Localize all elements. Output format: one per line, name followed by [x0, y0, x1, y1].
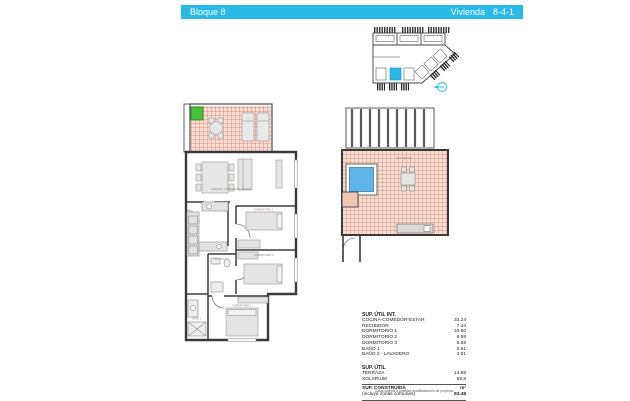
living-label: COCINA, COMEDOR, ESTAR [211, 187, 252, 191]
disclaimer-note: Datos sujetos a posibles modificaciones … [352, 389, 476, 393]
dwelling-label: Vivienda8-4-1 [451, 5, 514, 19]
terrace-green-unit [191, 107, 203, 120]
dwelling-number: 8-4-1 [493, 7, 514, 17]
bath1-label: BAÑO 1 [193, 318, 202, 321]
table-row: SOLARIUM59.8 [362, 377, 466, 383]
title-bar: Bloque 8 Vivienda8-4-1 [181, 5, 523, 19]
solarium-label: SOLARIUM [396, 156, 412, 160]
floor-plan-sheet: Bloque 8 Vivienda8-4-1 [0, 0, 630, 401]
stair-bulkhead [342, 192, 358, 207]
highlighted-unit [390, 68, 401, 80]
compass-icon [434, 83, 447, 92]
bath2-fixtures [211, 258, 230, 292]
building-outline [373, 33, 455, 83]
bedroom2-furniture [238, 212, 282, 248]
solarium-plan: SOLARIUM [338, 98, 456, 268]
hall-label: RECIBIDOR [214, 257, 229, 261]
bedroom1-label: DORMITORIO 1 [233, 304, 253, 308]
bedroom2-label: DORMITORIO 2 [255, 208, 275, 212]
solarium-table [401, 167, 415, 191]
outdoor-counter [397, 224, 433, 233]
kitchen-counters [187, 202, 228, 256]
apartment-floor-plan: COCINA, COMEDOR, ESTAR RECIBIDOR DORMITO… [184, 98, 300, 348]
block-label: Bloque 8 [190, 5, 226, 19]
pergola [346, 108, 434, 148]
bedroom3-label: DORMITORIO 3 [255, 253, 275, 257]
areas-table: SUP. ÚTIL INT. COCINA-COMEDOR-ESTAR33.24… [362, 311, 466, 401]
terrace-furniture [209, 113, 269, 141]
bedroom1-furniture [226, 297, 268, 336]
plunge-pool [346, 164, 377, 195]
site-key-plan [360, 26, 485, 98]
